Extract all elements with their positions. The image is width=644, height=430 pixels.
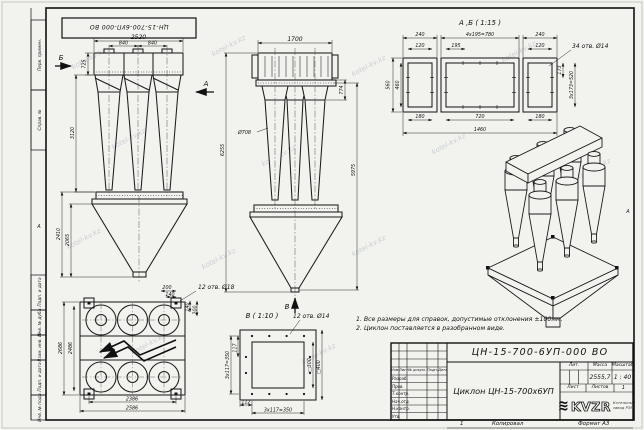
dim-120-l: 120 [415,43,424,49]
dim-840-2: 840 [148,41,157,47]
dim-240-r: 240 [535,32,544,38]
header-sign: Подп. [427,368,438,372]
top-designation-stamp: ЦН-15-700-6УП-000 ВО [62,18,196,38]
isometric-view [486,126,619,327]
dim-3x117-left: 3х117=350 [225,351,231,379]
sheet-label: Лист [560,385,586,390]
format-label: Формат А3 [578,421,609,427]
drawing-sheet: kotel-kv.kz kotel-kv.kz kotel-kv.kz kote… [0,0,644,430]
dim-560: 560 [386,80,392,89]
dim-2386: 2386 [126,397,138,403]
mass-value: 2555,7 [588,371,612,384]
scale-value: 1 : 40 [612,371,633,384]
dim-2410: 2410 [56,228,62,240]
dim-2586: 2586 [126,406,138,412]
company-line-2: завод РЭП [613,406,635,411]
dim-2686: 2686 [58,342,64,354]
dim-725: 725 [82,59,88,68]
lit-label: Лит. [560,363,588,368]
ab-holes-note: 34 отв. Ø14 [572,43,609,50]
row-tkontr: Т.контр. [392,391,408,396]
dim-112: 112 [241,400,250,406]
v-detail-title: В ( 1:10 ) [246,312,279,320]
row-prov: Пров. [392,384,408,389]
dim-d708: Ø708 [237,129,251,136]
logo-glyph-icon: ≋ [558,397,569,414]
dim-774: 774 [339,85,345,94]
dim-1460: 1460 [474,127,486,133]
dim-720: 720 [475,114,484,120]
dim-460: 460 [395,80,401,89]
margin-label: Взам. инв. № [37,332,43,362]
dim-2520: 2520 [131,34,146,41]
dim-180-l: 180 [415,114,424,120]
row-utv: Утв. [392,414,408,419]
view-arrow-label-v: В [285,303,290,311]
dim-4x195: 4х195=780 [466,32,494,38]
dim-140-right: 140 [185,302,191,311]
dim-3x173: 3х173=520 [569,71,575,99]
title-block-product-name: Циклон ЦН-15-700х6УП [447,366,560,416]
technical-notes: 1. Все размеры для справок, допустимые о… [356,316,626,333]
dim-6255: 6255 [220,144,226,156]
header-list: Лист [399,368,407,372]
dim-120-r: 120 [535,43,544,49]
header-izm: Изм. [391,368,399,372]
margin-label: Перв. примен. [37,39,43,71]
view-arrow-label-a: А [203,80,209,88]
v-detail-holes-note: 12 отв. Ø14 [293,313,330,320]
margin-label: Инв. № дубл. [37,307,43,336]
header-date: Дата [438,368,447,372]
dim-180-r: 180 [535,114,544,120]
dim-195: 195 [451,43,460,49]
ab-detail-title: А ,Б ( 1:15 ) [458,19,501,27]
v-detail-view: В ( 1:10 ) 12 отв. Ø14 3х117=35 [225,312,330,415]
copied-label: Копировал [492,421,523,427]
dim-3120: 3120 [70,127,76,139]
zone-letter-left: А [36,224,41,230]
logo-text: KVZR [571,399,611,414]
dim-840-1: 840 [119,41,128,47]
side-view: 1700 774 Ø708 6255 5975 В [220,36,359,313]
dim-117: 117 [233,343,239,352]
dim-sq300: □300 [307,358,313,372]
dim-1700: 1700 [287,36,302,43]
sheet-mark: 1 [460,421,464,427]
rotated-designation-text: ЦН-15-700-6УП-000 ВО [89,23,168,30]
plan-view: 2686 2486 2386 2586 200 140 140 200 12 о… [58,284,235,413]
dim-2486: 2486 [68,342,74,354]
mass-label: Масса [588,363,612,368]
row-nkontr: Н.контр. [392,406,408,411]
dim-240-l: 240 [415,32,424,38]
company-name: Котельный завод РЭП [613,401,635,410]
dim-173: 173 [557,65,563,74]
margin-label: Подп. и дата [37,277,43,307]
note-line-1: 1. Все размеры для справок, допустимые о… [356,316,626,325]
sheets-value: 1 [614,385,633,391]
margin-label: Справ. № [37,109,43,130]
dim-5975: 5975 [351,164,357,176]
scale-label: Масштаб [612,363,633,368]
row-nachotd: Нач.отд. [392,399,408,404]
zone-letter-right: А [625,209,630,215]
sheets-label: Листов [586,385,614,390]
dim-2065: 2065 [65,234,71,246]
dim-200-right: 200 [193,305,199,314]
header-doc: № докум. [407,368,427,372]
front-view: 2520 840 840 725 3120 2410 2065 Б А [55,34,214,282]
view-arrow-label-b: Б [59,54,64,62]
dim-3x117-bottom: 3х117=350 [264,408,292,414]
note-line-2: 2. Циклон поставляется в разобранном вид… [356,325,626,334]
dim-200-top: 200 [162,285,171,291]
dim-sq400: □400 [316,360,322,374]
company-logo: ≋ KVZR Котельный завод РЭП [561,393,632,419]
margin-label: Инв. № подл. [37,392,43,422]
title-block-designation: ЦН-15-700-6УП-000 ВО [447,344,633,362]
plan-holes-note: 12 отв. Ø18 [198,284,235,291]
row-razrab: Разраб. [392,376,408,381]
dim-140-top: 140 [165,292,174,298]
ab-detail-view: А ,Б ( 1:15 ) [386,19,609,136]
margin-label: Подп. и дата [37,362,43,392]
